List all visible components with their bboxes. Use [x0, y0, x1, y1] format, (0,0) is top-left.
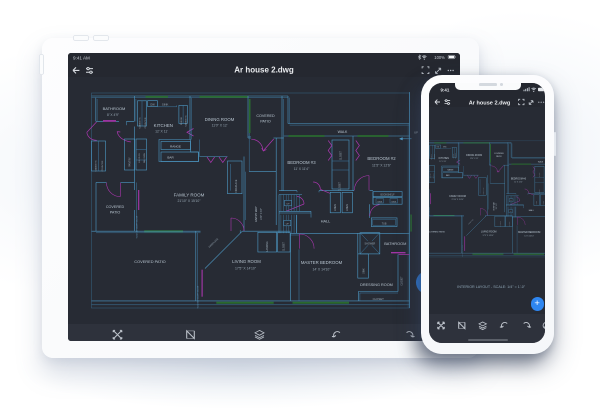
- svg-text:BEDROOM #2: BEDROOM #2: [367, 156, 396, 161]
- svg-text:DBL OVEN: DBL OVEN: [143, 152, 145, 163]
- svg-text:100%: 100%: [434, 55, 445, 60]
- svg-text:FRIDGE: FRIDGE: [181, 116, 183, 125]
- svg-text:COVERED: COVERED: [256, 114, 275, 118]
- svg-text:9:41 AM: 9:41 AM: [73, 56, 90, 61]
- svg-text:HALL: HALL: [320, 220, 330, 224]
- svg-text:DINING ROOM: DINING ROOM: [204, 117, 234, 122]
- svg-text:FAMILY ROOM: FAMILY ROOM: [173, 193, 204, 198]
- svg-text:COUNTER: COUNTER: [101, 160, 103, 171]
- svg-text:UP: UP: [286, 204, 290, 206]
- svg-text:UP: UP: [285, 224, 289, 226]
- svg-text:BEDROOM #3: BEDROOM #3: [287, 160, 316, 165]
- svg-text:PANTRY: PANTRY: [128, 157, 131, 167]
- svg-text:BAR: BAR: [167, 156, 174, 160]
- svg-text:LINEN: LINEN: [335, 204, 337, 211]
- svg-text:SHOWER: SHOWER: [364, 243, 375, 246]
- svg-text:KITCHEN: KITCHEN: [153, 123, 172, 128]
- svg-text:Ar house 2.dwg: Ar house 2.dwg: [234, 65, 294, 74]
- svg-text:BATHROOM: BATHROOM: [102, 106, 125, 111]
- svg-text:17'5" X 14'10": 17'5" X 14'10": [234, 266, 256, 270]
- svg-text:SINK: SINK: [377, 201, 382, 203]
- svg-text:RANGE: RANGE: [169, 145, 180, 149]
- svg-text:CLOSET: CLOSET: [372, 297, 383, 301]
- svg-text:LINEN: LINEN: [347, 204, 349, 211]
- svg-text:LIN CLOS: LIN CLOS: [138, 153, 140, 163]
- svg-text:DRESSING ROOM: DRESSING ROOM: [360, 283, 393, 287]
- svg-text:CABINETS: CABINETS: [94, 160, 97, 171]
- svg-text:LANDING: LANDING: [266, 241, 269, 251]
- svg-text:BOOKSHELF: BOOKSHELF: [380, 195, 395, 197]
- svg-text:ENTRY WAY: ENTRY WAY: [254, 206, 258, 222]
- svg-text:8' X 4'9": 8' X 4'9": [107, 113, 120, 117]
- svg-text:CLOSET: CLOSET: [283, 241, 285, 251]
- svg-text:11'0" X 12': 11'0" X 12': [211, 123, 227, 127]
- svg-text:SLIDING GLASS DOOR: SLIDING GLASS DOOR: [135, 215, 138, 238]
- svg-text:14' X 14'10": 14' X 14'10": [312, 267, 331, 271]
- svg-text:SINK: SINK: [161, 103, 168, 107]
- svg-text:CLOSET: CLOSET: [340, 150, 342, 160]
- svg-text:UP: UP: [414, 131, 418, 135]
- svg-text:SINK: SINK: [391, 201, 396, 203]
- svg-text:CLOSET: CLOSET: [401, 276, 403, 286]
- svg-text:LIVING ROOM: LIVING ROOM: [232, 259, 261, 264]
- svg-text:SLIDING GLASS DOOR: SLIDING GLASS DOOR: [196, 285, 199, 308]
- svg-text:COVERED: COVERED: [105, 205, 124, 209]
- svg-text:21'10" X 15'10": 21'10" X 15'10": [177, 199, 201, 203]
- svg-text:12' X 11': 12' X 11': [155, 129, 168, 133]
- svg-text:WALK: WALK: [337, 130, 347, 134]
- svg-text:10'9" X 6'7": 10'9" X 6'7": [259, 208, 262, 220]
- svg-text:COVERED PATIO: COVERED PATIO: [134, 259, 165, 264]
- svg-text:MASTER BEDROOM: MASTER BEDROOM: [300, 260, 342, 265]
- svg-text:11'5" X 12'6": 11'5" X 12'6": [372, 163, 392, 167]
- svg-text:11' X 11'4": 11' X 11'4": [293, 167, 309, 171]
- svg-text:TUB: TUB: [381, 222, 386, 225]
- svg-text:COUNTER: COUNTER: [144, 117, 146, 128]
- svg-text:SINK: SINK: [363, 268, 365, 274]
- svg-text:PATIO: PATIO: [260, 119, 271, 123]
- svg-text:FIREPLACE: FIREPLACE: [234, 179, 237, 192]
- svg-text:BATHROOM: BATHROOM: [384, 241, 406, 246]
- svg-text:CABINETS: CABINETS: [138, 117, 141, 128]
- svg-text:PATIO: PATIO: [109, 210, 120, 214]
- svg-text:CLOSET: CLOSET: [339, 181, 341, 191]
- svg-text:DW: DW: [150, 102, 155, 106]
- svg-text:9:41: 9:41: [440, 87, 449, 92]
- svg-text:CABINETS: CABINETS: [184, 115, 187, 126]
- svg-text:FIREPLACE: FIREPLACE: [208, 237, 219, 248]
- svg-text:Ar house 2.dwg: Ar house 2.dwg: [469, 100, 511, 106]
